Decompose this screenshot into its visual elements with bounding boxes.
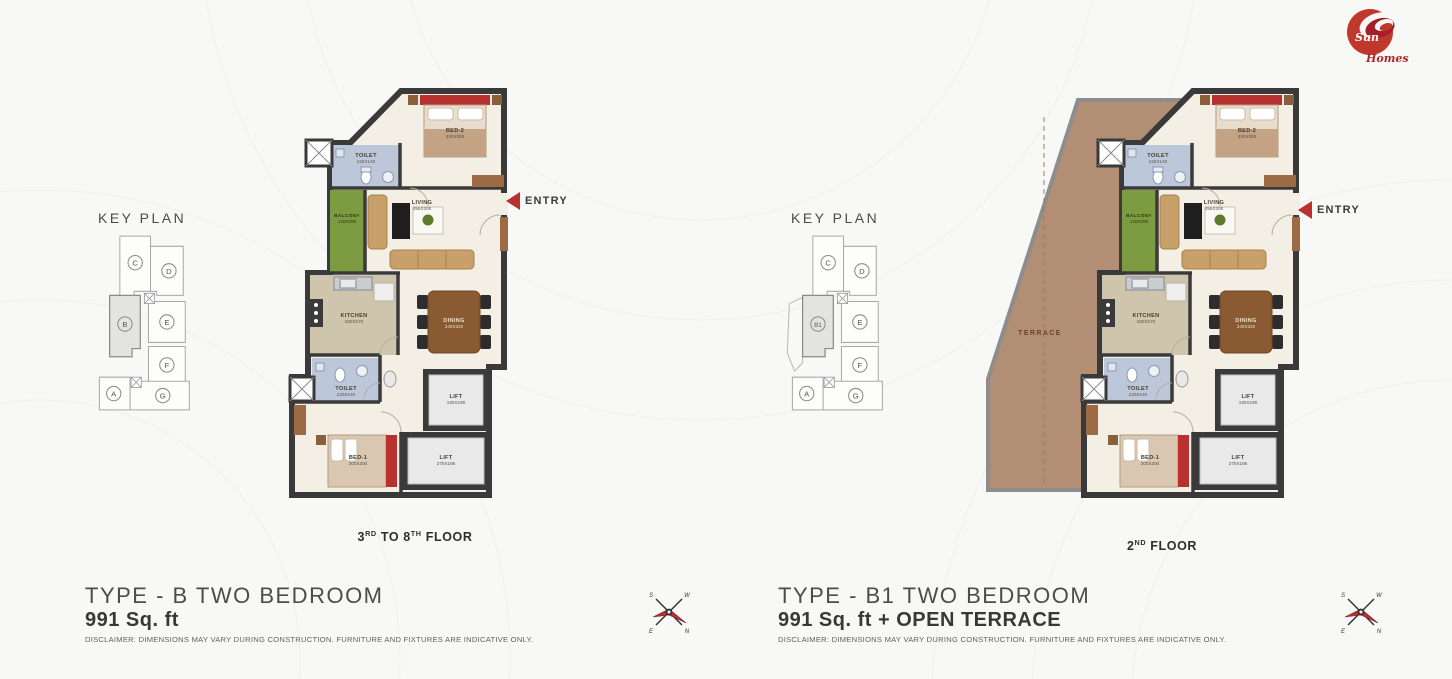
entry-label: ENTRY: [1317, 204, 1360, 216]
plan-area: 991 Sq. ft: [85, 608, 645, 632]
key-plan-title: KEY PLAN: [791, 210, 915, 226]
bed1-dim: 300X300: [349, 461, 368, 466]
key-letter-b: B: [122, 320, 127, 329]
compass-w: W: [1376, 593, 1383, 599]
kitchen-dim: 260X270: [1137, 319, 1156, 324]
floor-mid: TO 8: [377, 530, 411, 544]
key-letter-d: D: [166, 267, 172, 276]
floor-range-label-right: 2ND FLOOR: [1062, 538, 1262, 553]
toilet-top-dim: 225X140: [1149, 159, 1168, 164]
plan-disclaimer: DISCLAIMER: DIMENSIONS MAY VARY DURING C…: [85, 635, 645, 644]
logo-word-sun: Sun: [1355, 31, 1379, 44]
unit-b1: BED-2 330X300 TOILET 225X140 BALCONY 120…: [1082, 91, 1300, 495]
entry-label: ENTRY: [525, 195, 568, 207]
key-letter-c: C: [132, 259, 138, 268]
compass-icon: S W E N: [646, 590, 692, 634]
title-block-left: TYPE - B TWO BEDROOM 991 Sq. ft DISCLAIM…: [85, 583, 645, 644]
title-block-right: TYPE - B1 TWO BEDROOM 991 Sq. ft + OPEN …: [778, 583, 1338, 644]
plan-disclaimer: DISCLAIMER: DIMENSIONS MAY VARY DURING C…: [778, 635, 1338, 644]
living-dim: 455X300: [1205, 206, 1224, 211]
entry-marker-left: ENTRY: [506, 192, 568, 210]
logo-word-homes: Homes: [1365, 52, 1409, 65]
key-plan-title: KEY PLAN: [98, 210, 222, 226]
toilet-top-dim: 225X140: [357, 159, 376, 164]
key-plan-right: KEY PLAN C: [785, 210, 915, 419]
key-unit-c: [813, 236, 844, 299]
compass-n: N: [1377, 629, 1382, 634]
dining-dim: 340X320: [445, 324, 464, 329]
lift-small-dim: 190X190: [447, 400, 466, 405]
floor-sup2: TH: [411, 529, 422, 538]
balcony-room: [330, 190, 365, 273]
entry-marker-right: ENTRY: [1298, 201, 1360, 219]
lift-small-dim: 190X190: [1239, 400, 1258, 405]
plan-title: TYPE - B1 TWO BEDROOM: [778, 583, 1338, 608]
terrace-label: TERRACE: [1018, 330, 1062, 337]
key-letter-a: A: [111, 390, 117, 399]
balcony-room: [1122, 190, 1157, 273]
key-plan-left-map: C D B E F A G: [92, 232, 207, 414]
floor-num: 2: [1127, 539, 1135, 553]
compass-w: W: [684, 593, 691, 599]
key-plan-left: KEY PLAN C D: [92, 210, 222, 419]
floor-sup: ND: [1135, 538, 1147, 547]
compass-s: S: [649, 593, 653, 599]
floor-range-label-left: 3RD TO 8TH FLOOR: [315, 529, 515, 544]
key-letter-c: C: [825, 259, 831, 268]
toilet-bottom-dim: 220X140: [337, 392, 356, 397]
bed2-dim: 330X300: [1238, 134, 1257, 139]
lift-large-dim: 270X195: [437, 461, 456, 466]
balcony-dim: 120X290: [338, 219, 357, 224]
balcony-dim: 120X290: [1130, 219, 1149, 224]
compass-e: E: [1341, 629, 1346, 634]
floor-rest: FLOOR: [1146, 539, 1197, 553]
floor-num: 3: [358, 530, 366, 544]
sun-homes-logo-icon: Sun Homes: [1334, 6, 1410, 68]
plan-area: 991 Sq. ft + OPEN TERRACE: [778, 608, 1338, 632]
plan-title: TYPE - B TWO BEDROOM: [85, 583, 645, 608]
key-letter-a: A: [804, 390, 810, 399]
logo: Sun Homes: [1334, 6, 1410, 68]
key-letter-g: G: [853, 392, 859, 401]
key-unit-c: [120, 236, 151, 299]
key-letter-e: E: [857, 318, 862, 327]
floor-sup: RD: [365, 529, 377, 538]
bed1-dim: 300X300: [1141, 461, 1160, 466]
floor-plan-type-b: BED-2 330X300 TOILET 225X140 BALCONY 120…: [282, 87, 522, 507]
floor-plan-sheet: Sun Homes KEY PLAN: [0, 0, 1452, 679]
key-letter-g: G: [160, 392, 166, 401]
key-terrace-outline: [787, 297, 802, 371]
lift-large-dim: 270X195: [1229, 461, 1248, 466]
compass-n: N: [685, 629, 690, 634]
compass-s: S: [1341, 593, 1345, 599]
entry-arrow-icon: [506, 192, 520, 210]
key-letter-f: F: [165, 361, 170, 370]
entry-arrow-icon: [1298, 201, 1312, 219]
floor-plan-type-b1: TERRACE: [982, 87, 1314, 507]
key-letter-d: D: [859, 267, 865, 276]
compass-icon: S W E N: [1338, 590, 1384, 634]
compass-e: E: [649, 629, 654, 634]
bed2-dim: 330X300: [446, 134, 465, 139]
floor-rest: FLOOR: [422, 530, 473, 544]
key-plan-right-map: C D B1 E F A G: [785, 232, 900, 414]
key-letter-b1: B1: [814, 322, 822, 329]
living-dim: 455X300: [413, 206, 432, 211]
key-letter-e: E: [164, 318, 169, 327]
key-letter-f: F: [858, 361, 863, 370]
toilet-bottom-dim: 220X140: [1129, 392, 1148, 397]
kitchen-dim: 260X270: [345, 319, 364, 324]
dining-dim: 340X320: [1237, 324, 1256, 329]
